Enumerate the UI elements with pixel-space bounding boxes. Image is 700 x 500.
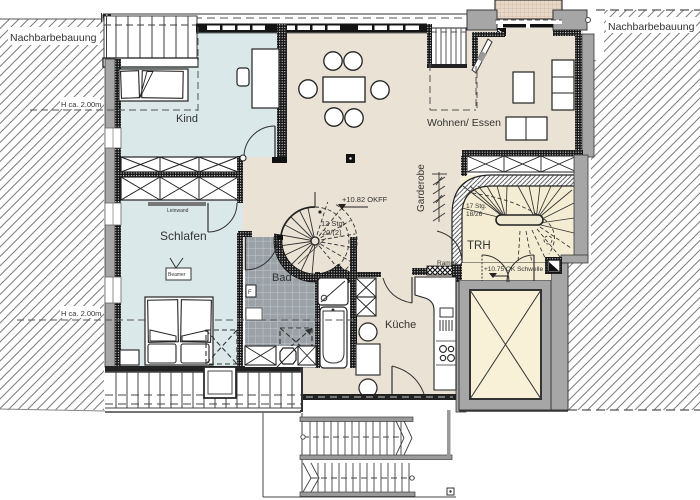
svg-text:12 Stg.: 12 Stg. (321, 219, 345, 228)
svg-text:Garderobe: Garderobe (416, 164, 427, 212)
svg-text:+10.75 OK Schwelle: +10.75 OK Schwelle (484, 266, 543, 273)
svg-text:TRH: TRH (467, 240, 491, 252)
svg-text:18/26: 18/26 (466, 211, 483, 218)
svg-text:F: F (248, 290, 252, 296)
svg-text:Rampe: Rampe (437, 260, 458, 267)
svg-text:Bad: Bad (272, 272, 292, 284)
svg-text:20/(2): 20/(2) (322, 228, 342, 237)
svg-text:Schlafen: Schlafen (160, 229, 207, 243)
svg-text:+10.82 OKFF: +10.82 OKFF (342, 195, 388, 204)
svg-text:17 Stg.: 17 Stg. (466, 203, 487, 210)
svg-text:Nachbarbebauung: Nachbarbebauung (10, 32, 97, 44)
svg-text:Wohnen/ Essen: Wohnen/ Essen (427, 117, 501, 129)
svg-text:Nachbarbebauung: Nachbarbebauung (608, 21, 695, 33)
svg-text:H ca. 2.00m: H ca. 2.00m (61, 309, 101, 318)
svg-text:Küche: Küche (385, 319, 416, 331)
svg-text:Kind: Kind (176, 113, 198, 125)
svg-text:Leinwand: Leinwand (167, 208, 189, 214)
svg-text:H ca. 2.00m: H ca. 2.00m (61, 100, 101, 109)
svg-text:Beamer: Beamer (168, 272, 186, 278)
